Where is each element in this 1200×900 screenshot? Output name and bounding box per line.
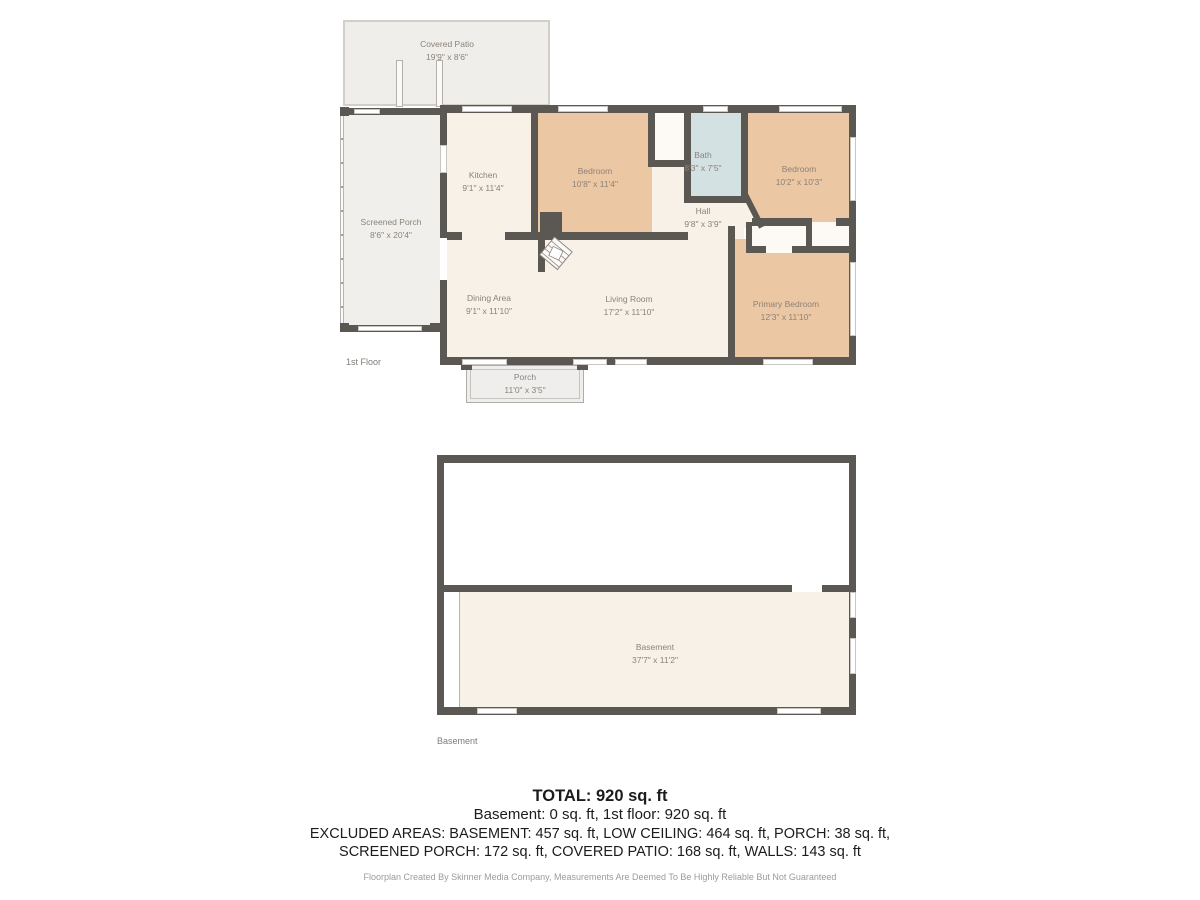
room-label-porch: Porch 11'0" x 3'5" xyxy=(504,371,545,397)
window-marker xyxy=(850,592,856,618)
room-label-kitchen: Kitchen 9'1" x 11'4" xyxy=(462,169,503,195)
wall xyxy=(741,112,748,203)
summary-excluded-2: SCREENED PORCH: 172 sq. ft, COVERED PATI… xyxy=(0,843,1200,861)
room-label-screened-porch: Screened Porch 8'6" x 20'4" xyxy=(361,216,422,242)
wall xyxy=(806,246,852,253)
wall xyxy=(849,455,856,715)
stairs-icon xyxy=(536,234,576,274)
room-label-bedroom-right: Bedroom 10'2" x 10'3" xyxy=(776,163,823,189)
window-marker xyxy=(462,106,512,112)
window-marker xyxy=(850,262,856,336)
wall xyxy=(836,218,852,226)
room-label-bedroom-top: Bedroom 10'8" x 11'4" xyxy=(572,165,618,191)
window-marker xyxy=(850,638,856,674)
porch-post xyxy=(430,323,440,332)
room-label-basement: Basement 37'7" x 11'2" xyxy=(632,641,678,667)
summary-floors: Basement: 0 sq. ft, 1st floor: 920 sq. f… xyxy=(0,806,1200,825)
window-marker xyxy=(477,708,517,714)
room-label-covered-patio: Covered Patio 19'9" x 8'6" xyxy=(420,38,474,64)
window-marker xyxy=(558,106,608,112)
basement-left-strip xyxy=(444,592,460,707)
door-opening xyxy=(440,238,447,280)
screen-panel-wall xyxy=(340,114,344,326)
area-summary: TOTAL: 920 sq. ft Basement: 0 sq. ft, 1s… xyxy=(0,786,1200,882)
hall-upper-area xyxy=(652,165,688,240)
porch-stub xyxy=(577,365,588,370)
disclaimer-text: Floorplan Created By Skinner Media Compa… xyxy=(0,872,1200,882)
chimney-block xyxy=(540,212,562,233)
patio-wall-stub xyxy=(436,60,443,107)
room-label-bath: Bath 8'3" x 7'5" xyxy=(684,149,721,175)
closet-area xyxy=(652,112,688,165)
wall xyxy=(444,585,792,592)
room-label-primary: Primary Bedroom 12'3" x 11'10" xyxy=(753,298,819,324)
wall xyxy=(437,455,444,715)
window-marker xyxy=(763,359,813,365)
window-marker xyxy=(440,145,447,173)
porch-post xyxy=(340,323,349,332)
wall xyxy=(531,112,538,233)
room-label-dining: Dining Area 9'1" x 11'10" xyxy=(466,292,512,318)
porch-post xyxy=(340,107,349,116)
wall xyxy=(505,232,688,240)
wall xyxy=(728,226,735,359)
window-marker xyxy=(777,708,821,714)
wall xyxy=(648,112,655,167)
porch-stub xyxy=(461,365,472,370)
wall xyxy=(437,455,856,463)
first-floor-label: 1st Floor xyxy=(346,357,381,367)
window-marker xyxy=(850,137,856,201)
wall xyxy=(684,196,748,203)
wall xyxy=(752,218,810,226)
floorplan-page: Covered Patio 19'9" x 8'6" Screened Porc… xyxy=(0,0,1200,900)
room-label-living: Living Room 17'2" x 11'10" xyxy=(604,293,655,319)
wall xyxy=(822,585,849,592)
wall xyxy=(746,246,766,253)
window-marker xyxy=(358,326,422,331)
window-marker xyxy=(354,109,380,114)
window-marker xyxy=(779,106,842,112)
room-label-hall: Hall 9'8" x 3'9" xyxy=(684,205,721,231)
summary-total: TOTAL: 920 sq. ft xyxy=(0,786,1200,806)
wall xyxy=(447,232,462,240)
window-marker xyxy=(703,106,728,112)
basement-floor-label: Basement xyxy=(437,736,478,746)
wall xyxy=(440,105,447,365)
window-marker xyxy=(615,359,647,365)
patio-wall-stub xyxy=(396,60,403,107)
summary-excluded-1: EXCLUDED AREAS: BASEMENT: 457 sq. ft, LO… xyxy=(0,825,1200,843)
